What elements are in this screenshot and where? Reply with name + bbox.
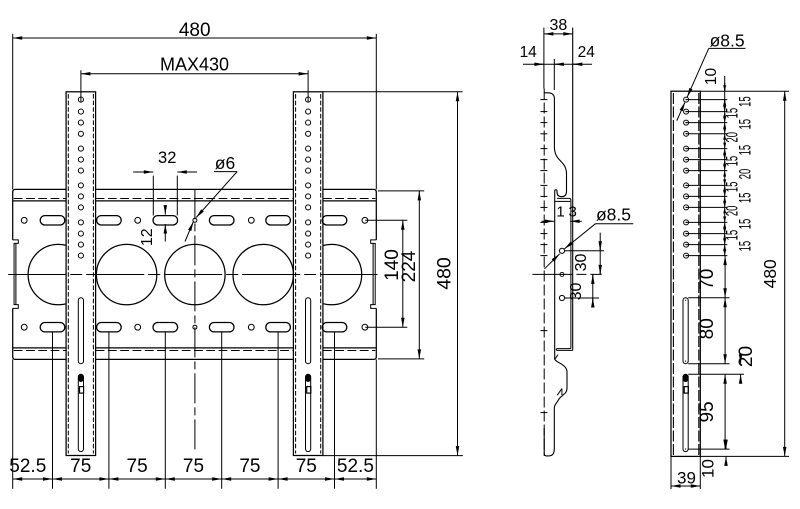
svg-text:14: 14 [520,44,538,61]
svg-text:20: 20 [737,169,755,180]
svg-text:38: 38 [550,17,568,34]
svg-text:70: 70 [697,269,718,290]
svg-text:20: 20 [724,206,742,217]
svg-text:80: 80 [697,318,718,339]
svg-text:75: 75 [127,456,148,477]
svg-text:15: 15 [724,182,742,193]
svg-text:75: 75 [239,456,260,477]
svg-text:10: 10 [699,459,718,478]
svg-text:32: 32 [158,149,176,167]
svg-text:224: 224 [399,250,420,282]
svg-text:24: 24 [578,44,596,61]
svg-text:39: 39 [677,468,696,487]
svg-text:75: 75 [183,456,204,477]
svg-text:15: 15 [737,119,755,130]
svg-text:15: 15 [737,96,755,107]
svg-text:15: 15 [737,193,755,204]
svg-text:480: 480 [760,259,780,288]
svg-text:480: 480 [179,20,211,41]
svg-text:15: 15 [724,108,742,119]
svg-text:75: 75 [296,456,317,477]
svg-text:ø8.5: ø8.5 [596,205,631,225]
svg-text:MAX430: MAX430 [160,54,229,74]
svg-text:ø6: ø6 [215,153,235,173]
svg-text:52.5: 52.5 [337,456,374,477]
svg-text:30: 30 [568,283,585,301]
svg-text:1: 1 [556,203,564,220]
svg-text:75: 75 [70,456,91,477]
svg-text:15: 15 [724,156,742,167]
svg-text:15: 15 [737,219,755,230]
svg-text:52.5: 52.5 [9,456,46,477]
svg-text:15: 15 [737,145,755,156]
svg-text:ø8.5: ø8.5 [710,30,745,50]
svg-text:10: 10 [703,68,720,86]
svg-text:12: 12 [139,228,156,246]
svg-text:20: 20 [736,346,757,367]
svg-text:480: 480 [434,257,456,290]
svg-text:30: 30 [573,254,590,272]
svg-text:20: 20 [724,132,742,143]
svg-text:95: 95 [697,401,718,422]
svg-text:3: 3 [569,203,577,220]
svg-text:15: 15 [724,230,742,241]
svg-text:15: 15 [737,241,755,252]
